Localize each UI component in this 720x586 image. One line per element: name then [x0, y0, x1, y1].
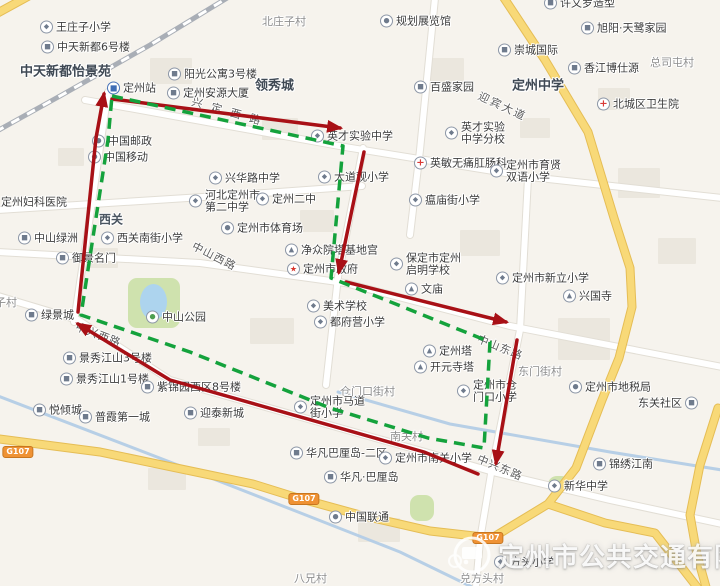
map-poi: ■景秀江山3号楼 [63, 352, 152, 365]
map-poi: ■中山绿洲 [18, 232, 78, 245]
poi-label: 普霞第一城 [95, 411, 150, 423]
school-icon: ◆ [256, 193, 269, 206]
poi-label: 阳光公寓3号楼 [184, 68, 257, 80]
poi-label: 定州塔 [439, 345, 472, 357]
poi-label: 许文罗造型 [560, 0, 615, 9]
poi-label: 华凡·巴厘岛 [340, 471, 399, 483]
school-icon: ◆ [294, 401, 307, 414]
map-poi: ◆瘟庙街小学 [409, 194, 480, 207]
map-poi: ■中天新都6号楼 [41, 41, 130, 54]
building-icon: ■ [568, 62, 581, 75]
building-icon: ■ [41, 41, 54, 54]
building-icon: ■ [593, 458, 606, 471]
map-poi: ◆定州市仓门口小学 [457, 380, 517, 403]
road-name-label: 中山西路 [189, 238, 239, 274]
poi-label: 英才实验中学 [327, 130, 393, 142]
building-icon: ■ [79, 411, 92, 424]
map-poi: ◆英才实验中学分校 [445, 122, 505, 145]
school-icon: ◆ [390, 258, 403, 271]
poi-label: 定州妇科医院 [1, 196, 67, 208]
school-icon: ◆ [379, 452, 392, 465]
map-poi: ◆河北定州市第二中学 [189, 190, 260, 213]
poi-label: 旭阳·天鹭家园 [597, 22, 667, 34]
poi-label: 保定市定州启明学校 [406, 253, 461, 276]
poi-label: 英才实验中学分校 [461, 122, 505, 145]
pagoda-icon: ▲ [423, 345, 436, 358]
poi-label: 中国联通 [345, 511, 389, 523]
poi-label: 定州市马道街小学 [310, 396, 365, 419]
poi-label: 开元寺塔 [430, 361, 474, 373]
poi-label: 迎泰新城 [200, 407, 244, 419]
poi-label: 中国移动 [104, 151, 148, 163]
map-poi: ◆新华中学 [548, 480, 608, 493]
map-poi: ■华凡·巴厘岛 [324, 471, 399, 484]
map-poi: ■景秀江山1号楼 [60, 373, 149, 386]
school-icon: ◆ [311, 130, 324, 143]
company-watermark: 定州市公共交通有限公司 [448, 532, 720, 578]
school-icon: ◆ [457, 385, 470, 398]
poi-dot-icon: ● [380, 15, 393, 28]
map-poi: ◆王庄子小学 [40, 21, 111, 34]
school-icon: ◆ [409, 194, 422, 207]
poi-label: 定州市地税局 [585, 381, 651, 393]
poi-label: 兴国寺 [579, 290, 612, 302]
poi-dot-icon: ● [329, 511, 342, 524]
map-poi: ◆西关南街小学 [101, 232, 183, 245]
district-label: 领秀城 [255, 75, 294, 94]
map-poi: ■悦倾城 [33, 404, 82, 417]
poi-label: 新华中学 [564, 480, 608, 492]
poi-label: 美术学校 [323, 300, 367, 312]
route-badge-g107: G107 [2, 446, 33, 458]
building-icon: ■ [544, 0, 557, 10]
building-icon: ■ [18, 232, 31, 245]
map-poi: ■迎泰新城 [184, 407, 244, 420]
map-labels-layer: 中天新都怡景苑领秀城定州中学西关北庄子村总司屯村庄子村东门街村仓门口街村南关村八… [0, 0, 720, 586]
map-poi: ◆定州市新立小学 [496, 272, 589, 285]
road-name-label: 中兴西路 [73, 319, 124, 351]
poi-label: 文庙 [421, 283, 443, 295]
map-poi: ■紫锦园西区8号楼 [141, 381, 241, 394]
poi-label: 定州市新立小学 [512, 272, 589, 284]
school-icon: ◆ [496, 272, 509, 285]
map-poi: ■定州站 [107, 82, 156, 95]
train-station-icon: ■ [107, 82, 120, 95]
map-viewport[interactable]: 中天新都怡景苑领秀城定州中学西关北庄子村总司屯村庄子村东门街村仓门口街村南关村八… [0, 0, 720, 586]
map-poi: ■香江博仕源 [568, 62, 639, 75]
district-label: 西关 [99, 211, 123, 228]
map-poi: ◆大道观小学 [318, 171, 389, 184]
poi-label: 华凡巴厘岛-二区 [306, 447, 387, 459]
map-poi: ■锦绣江南 [593, 458, 653, 471]
poi-label: 中山绿洲 [34, 232, 78, 244]
poi-label: 香江博仕源 [584, 62, 639, 74]
building-icon: ■ [141, 381, 154, 394]
poi-label: 中天新都6号楼 [57, 41, 130, 53]
poi-label: 规划展览馆 [396, 15, 451, 27]
poi-label: 定州二中 [272, 193, 316, 205]
pagoda-icon: ▲ [405, 283, 418, 296]
poi-label: 净众院塔基地宫 [301, 244, 378, 256]
building-icon: ■ [168, 68, 181, 81]
building-icon: ■ [56, 252, 69, 265]
poi-label: 中国邮政 [108, 135, 152, 147]
poi-dot-icon: ● [569, 381, 582, 394]
building-icon: ■ [414, 81, 427, 94]
school-icon: ◆ [490, 165, 503, 178]
pagoda-icon: ▲ [285, 244, 298, 257]
map-poi: ■许文罗造型 [544, 0, 615, 10]
map-poi: ▲文庙 [405, 283, 443, 296]
map-poi: ●规划展览馆 [380, 15, 451, 28]
poi-label: 中山公园 [162, 311, 206, 323]
red-cross-icon: + [597, 98, 610, 111]
village-label: 八兄村 [294, 570, 327, 586]
building-icon: ■ [63, 352, 76, 365]
map-poi: ■阳光公寓3号楼 [168, 68, 257, 81]
map-poi: ◆兴华路中学 [209, 172, 280, 185]
building-icon: ■ [581, 22, 594, 35]
village-label: 东门街村 [518, 363, 562, 379]
school-icon: ◆ [101, 232, 114, 245]
school-icon: ◆ [318, 171, 331, 184]
school-icon: ◆ [189, 195, 202, 208]
tree-icon: ● [146, 311, 159, 324]
map-poi: ★定州市政府 [287, 263, 358, 276]
map-poi: ▲定州塔 [423, 345, 472, 358]
map-poi: ◆英才实验中学 [311, 130, 393, 143]
poi-label: 定州市政府 [303, 263, 358, 275]
map-poi: 东关社区■ [638, 397, 698, 410]
map-poi: ■崇城国际 [498, 44, 558, 57]
poi-label: 西关南街小学 [117, 232, 183, 244]
poi-label: 东关社区 [638, 397, 682, 409]
poi-label: 都府营小学 [330, 316, 385, 328]
building-icon: ■ [184, 407, 197, 420]
company-name: 定州市公共交通有限公司 [498, 537, 720, 574]
poi-label: 崇城国际 [514, 44, 558, 56]
school-icon: ◆ [209, 172, 222, 185]
school-icon: ◆ [307, 300, 320, 313]
school-icon: ◆ [445, 127, 458, 140]
poi-label: 定州市仓门口小学 [473, 380, 517, 403]
village-label: 南关村 [390, 428, 423, 444]
map-poi: ◆保定市定州启明学校 [390, 253, 461, 276]
building-icon: ■ [324, 471, 337, 484]
district-label: 中天新都怡景苑 [20, 61, 111, 80]
building-icon: ■ [290, 447, 303, 460]
village-label: 总司屯村 [650, 54, 694, 70]
poi-label: 景秀江山1号楼 [76, 373, 149, 385]
map-poi: ●定州市体育场 [221, 222, 303, 235]
road-name-label: 中兴东路 [475, 451, 525, 484]
building-icon: ■ [25, 309, 38, 322]
map-poi: ◆定州市育贤双语小学 [490, 160, 561, 183]
poi-label: 兴华路中学 [225, 172, 280, 184]
poi-label: 景秀江山3号楼 [79, 352, 152, 364]
map-poi: ■旭阳·天鹭家园 [581, 22, 667, 35]
map-poi: ■绿景城 [25, 309, 74, 322]
building-icon: ■ [60, 373, 73, 386]
school-icon: ◆ [548, 480, 561, 493]
poi-label: 河北定州市第二中学 [205, 190, 260, 213]
poi-dot-icon: ● [88, 151, 101, 164]
map-poi: ◆都府营小学 [314, 316, 385, 329]
map-poi: ●中国移动 [88, 151, 148, 164]
map-poi: ■定州安源大厦 [167, 87, 249, 100]
poi-label: 御景名门 [72, 252, 116, 264]
map-poi: ●中国联通 [329, 511, 389, 524]
map-poi: ◆定州市马道街小学 [294, 396, 365, 419]
poi-label: 悦倾城 [49, 404, 82, 416]
building-icon: ■ [167, 87, 180, 100]
map-poi: ■御景名门 [56, 252, 116, 265]
village-label: 庄子村 [0, 294, 17, 310]
poi-label: 瘟庙街小学 [425, 194, 480, 206]
bus-logo-icon [448, 532, 494, 578]
red-cross-icon: + [414, 157, 427, 170]
red-star-icon: ★ [287, 263, 300, 276]
village-label: 北庄子村 [262, 13, 306, 29]
map-poi: ◆定州市南关小学 [379, 452, 472, 465]
poi-label: 定州安源大厦 [183, 87, 249, 99]
map-poi: ●中国邮政 [92, 135, 152, 148]
road-name-label: 中山东路 [475, 331, 525, 364]
poi-dot-icon: ● [92, 135, 105, 148]
building-icon: ■ [685, 397, 698, 410]
school-icon: ◆ [40, 21, 53, 34]
pagoda-icon: ▲ [563, 290, 576, 303]
poi-label: 锦绣江南 [609, 458, 653, 470]
poi-label: 王庄子小学 [56, 21, 111, 33]
district-label: 定州中学 [512, 75, 564, 94]
map-poi: ■普霞第一城 [79, 411, 150, 424]
map-poi: ◆美术学校 [307, 300, 367, 313]
map-poi: ●中山公园 [146, 311, 206, 324]
building-icon: ■ [498, 44, 511, 57]
map-poi: ▲兴国寺 [563, 290, 612, 303]
poi-label: 定州站 [123, 82, 156, 94]
poi-label: 定州市体育场 [237, 222, 303, 234]
poi-label: 大道观小学 [334, 171, 389, 183]
map-poi: ▲净众院塔基地宫 [285, 244, 378, 257]
poi-label: 百盛家园 [430, 81, 474, 93]
building-icon: ■ [33, 404, 46, 417]
poi-label: 北城区卫生院 [613, 98, 679, 110]
school-icon: ◆ [314, 316, 327, 329]
poi-label: 定州市育贤双语小学 [506, 160, 561, 183]
poi-label: 定州市南关小学 [395, 452, 472, 464]
poi-label: 绿景城 [41, 309, 74, 321]
map-poi: ■百盛家园 [414, 81, 474, 94]
map-poi: +北城区卫生院 [597, 98, 679, 111]
pagoda-icon: ▲ [414, 361, 427, 374]
route-badge-g107: G107 [288, 493, 319, 505]
map-poi: ▲开元寺塔 [414, 361, 474, 374]
map-poi: +定州妇科医院 [0, 196, 67, 209]
poi-label: 紫锦园西区8号楼 [157, 381, 241, 393]
poi-dot-icon: ● [221, 222, 234, 235]
map-poi: ◆定州二中 [256, 193, 316, 206]
map-poi: ■华凡巴厘岛-二区 [290, 447, 387, 460]
map-poi: ●定州市地税局 [569, 381, 651, 394]
